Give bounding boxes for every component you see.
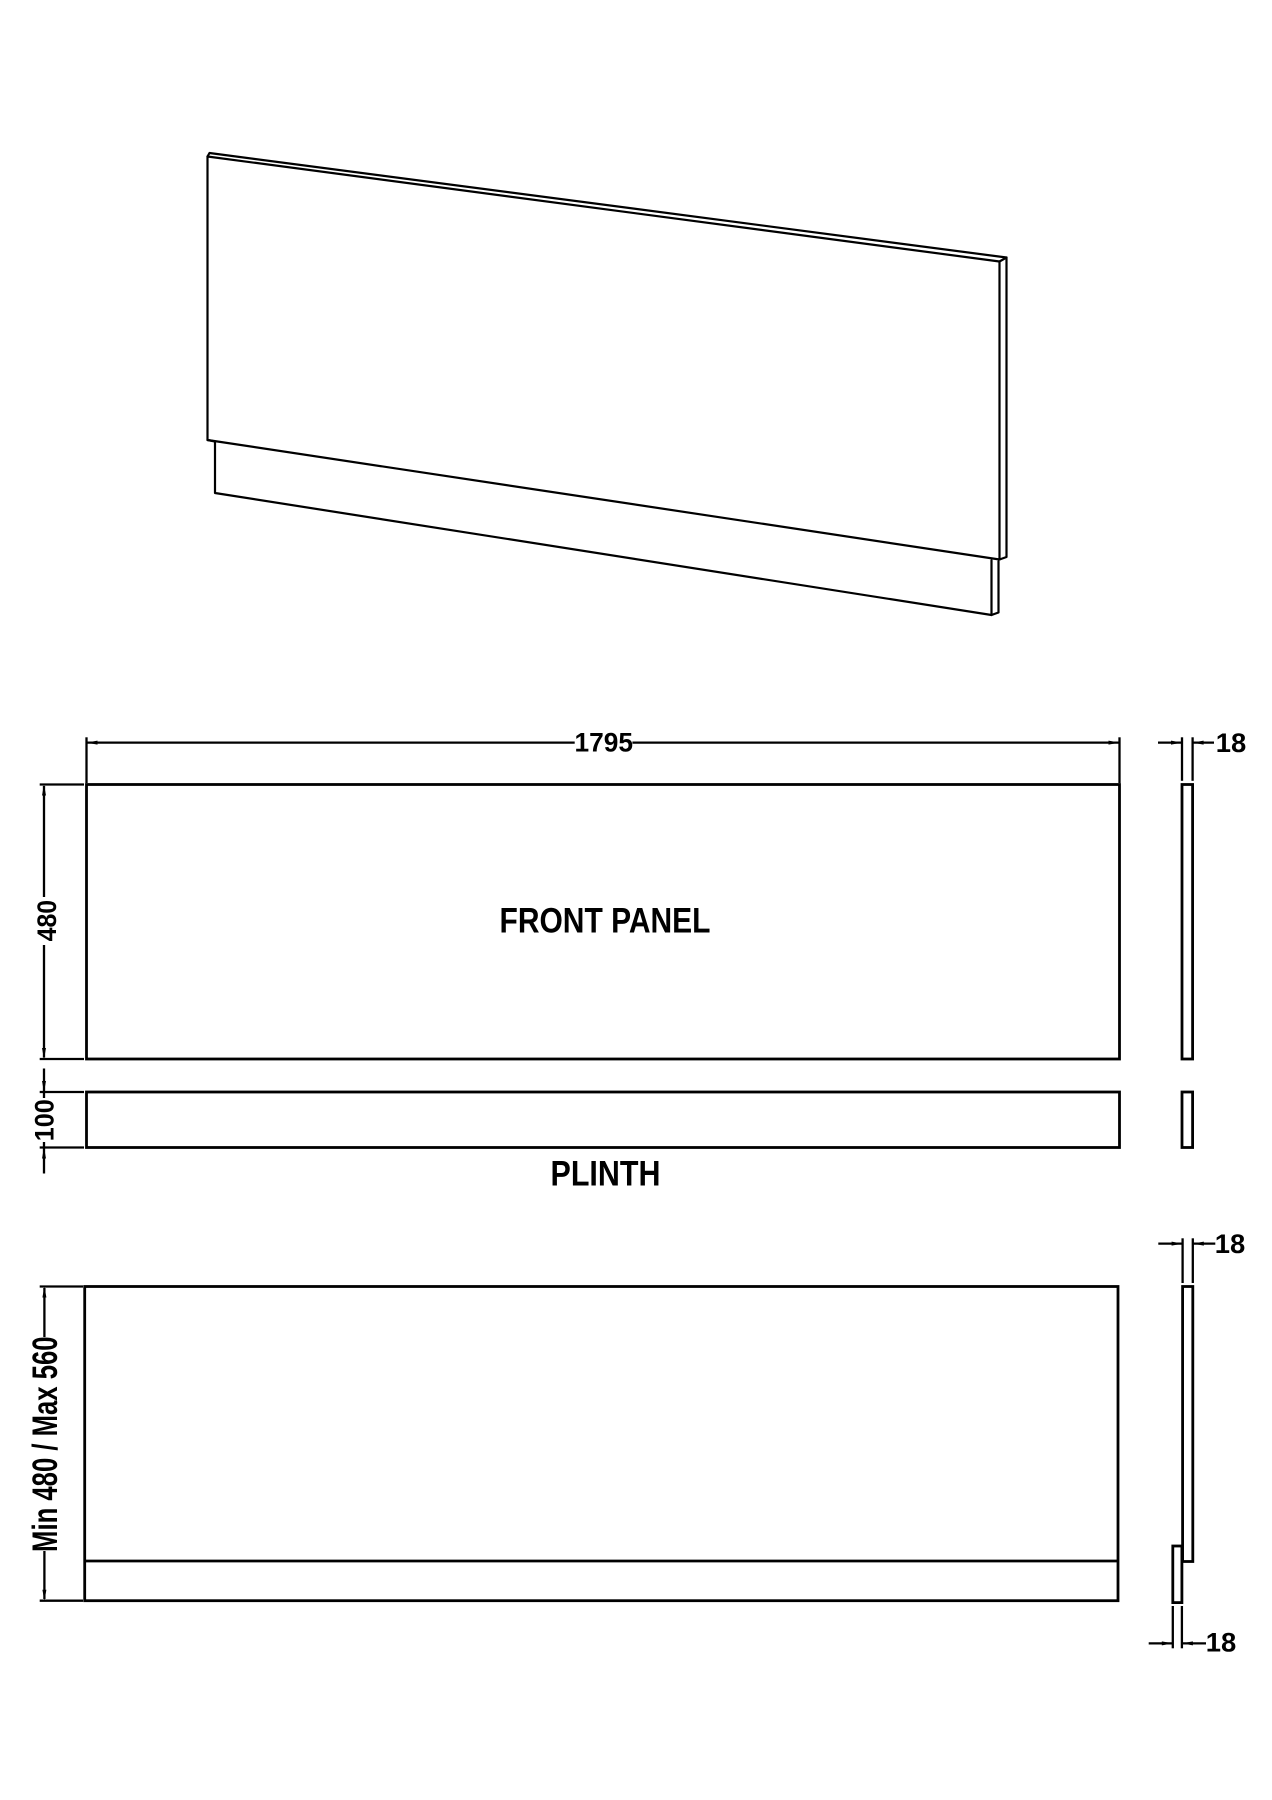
svg-text:18: 18 <box>1206 1628 1237 1658</box>
svg-text:1795: 1795 <box>575 727 634 757</box>
svg-text:FRONT PANEL: FRONT PANEL <box>500 900 711 940</box>
svg-text:480: 480 <box>32 900 62 942</box>
svg-text:100: 100 <box>30 1099 60 1141</box>
svg-text:PLINTH: PLINTH <box>551 1153 661 1193</box>
svg-text:18: 18 <box>1215 1229 1246 1259</box>
svg-text:18: 18 <box>1216 728 1247 758</box>
svg-text:Min 480 / Max 560: Min 480 / Max 560 <box>25 1336 65 1552</box>
